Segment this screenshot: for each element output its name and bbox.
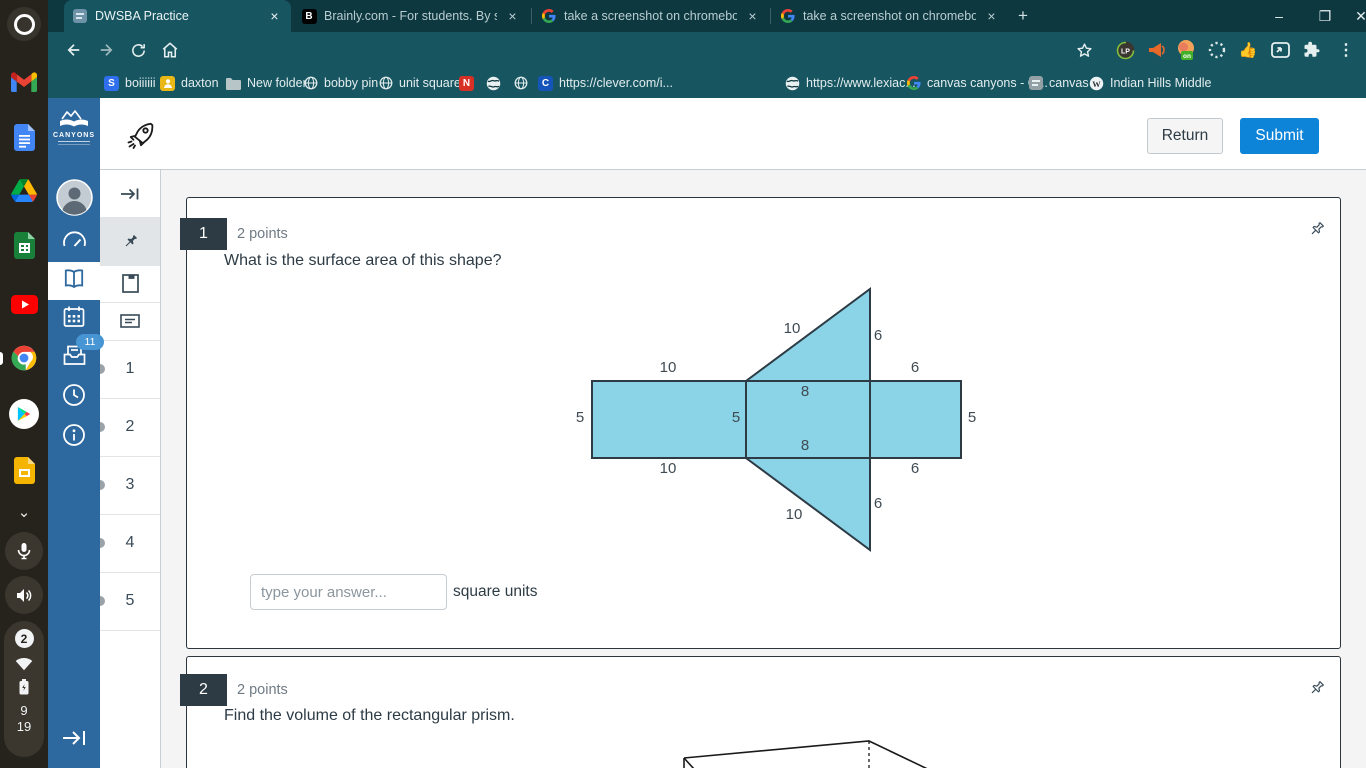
net-top-triangle bbox=[746, 289, 870, 381]
bookmark-canvas[interactable]: canvas bbox=[1029, 68, 1089, 98]
nav-inbox-icon[interactable]: 11 bbox=[48, 342, 100, 369]
extensions-puzzle-icon[interactable] bbox=[1300, 38, 1324, 62]
nav-help-icon[interactable] bbox=[48, 422, 100, 448]
restore-window-icon[interactable]: ❐ bbox=[1312, 4, 1338, 28]
globe-icon bbox=[486, 76, 501, 91]
google-favicon-icon bbox=[780, 8, 796, 24]
chrome-active-indicator bbox=[0, 352, 3, 365]
net-dimension-label: 10 bbox=[784, 320, 801, 337]
new-quizzes-rocket-icon bbox=[124, 118, 158, 152]
question-nav-item-1[interactable]: 1 bbox=[100, 340, 160, 398]
net-dimension-label: 8 bbox=[801, 383, 809, 400]
dotted-circle-extension-icon[interactable] bbox=[1205, 38, 1229, 62]
bookmark-lexia[interactable]: https://www.lexiac... bbox=[785, 68, 916, 98]
globe-icon bbox=[785, 76, 800, 91]
tab-strip: DWSBA Practice × B Brainly.com - For stu… bbox=[48, 0, 1366, 32]
bookmark-star-icon[interactable] bbox=[1072, 38, 1096, 62]
bookmark-bobby-pin[interactable]: bobby pin bbox=[304, 68, 378, 98]
bookmark-label: canvas bbox=[1049, 76, 1089, 90]
wifi-icon bbox=[15, 657, 33, 671]
svg-text:LP: LP bbox=[1121, 48, 1130, 55]
net-rectangle-strip bbox=[592, 381, 961, 458]
tab-separator bbox=[770, 8, 771, 24]
net-dimension-label: 10 bbox=[786, 506, 803, 523]
net-dimension-label: 5 bbox=[968, 409, 976, 426]
question-nav-number: 3 bbox=[126, 476, 135, 494]
canvas-favicon bbox=[1029, 76, 1043, 90]
megaphone-extension-icon[interactable] bbox=[1144, 38, 1168, 62]
google-favicon-icon bbox=[541, 8, 557, 24]
tab-dwsba-practice[interactable]: DWSBA Practice × bbox=[64, 0, 291, 32]
bookmark-label: Indian Hills Middle bbox=[1110, 76, 1211, 90]
bookmark-label: https://clever.com/i... bbox=[559, 76, 673, 90]
tab-separator bbox=[531, 8, 532, 24]
battery-charging-icon bbox=[19, 679, 29, 695]
net-dimension-label: 10 bbox=[660, 460, 677, 477]
bookmark-globe-site-1[interactable] bbox=[486, 68, 501, 98]
tab-close-icon[interactable]: × bbox=[266, 8, 283, 25]
svg-text:on: on bbox=[1183, 53, 1191, 60]
brainly-favicon-icon: B bbox=[301, 8, 317, 24]
svg-text:W: W bbox=[1092, 78, 1101, 88]
google-drive-app-icon[interactable] bbox=[4, 170, 44, 210]
inbox-unread-badge: 11 bbox=[76, 334, 104, 350]
net-dimension-label: 6 bbox=[874, 327, 882, 344]
tab-close-icon[interactable]: × bbox=[744, 8, 761, 25]
question-nav-number: 5 bbox=[126, 592, 135, 610]
launcher-button[interactable] bbox=[4, 4, 44, 44]
google-sheets-app-icon[interactable] bbox=[4, 225, 44, 265]
tab-close-icon[interactable]: × bbox=[983, 8, 1000, 25]
tab-screenshot-1[interactable]: take a screenshot on chromeboo × bbox=[533, 0, 769, 32]
bookmark-clever[interactable]: C https://clever.com/i... bbox=[538, 68, 673, 98]
tab-title: Brainly.com - For students. By st bbox=[324, 9, 497, 23]
rectangular-prism-diagram bbox=[656, 736, 946, 768]
browser-menu-icon[interactable]: ⋮ bbox=[1334, 38, 1358, 62]
canvas-global-nav: CANYONS 11 bbox=[48, 98, 100, 768]
bookmark-n-site[interactable]: N bbox=[459, 68, 474, 98]
tab-title: DWSBA Practice bbox=[95, 9, 259, 23]
canyons-logo[interactable]: CANYONS bbox=[48, 106, 100, 145]
prism-net-diagram: 10 10 6 6 5 5 8 8 5 10 6 10 6 bbox=[561, 279, 991, 561]
pin-question-icon[interactable] bbox=[1307, 679, 1326, 698]
gmail-app-icon[interactable] bbox=[4, 62, 44, 102]
question-nav-item-3[interactable]: 3 bbox=[100, 456, 160, 514]
net-dimension-label: 8 bbox=[801, 437, 809, 454]
shelf-overflow-chevron-icon[interactable]: ⌄ bbox=[4, 492, 44, 532]
bookmark-label: boiiiiii bbox=[125, 76, 156, 90]
tab-screenshot-2[interactable]: take a screenshot on chromeboo × bbox=[772, 0, 1008, 32]
question-card-1: 1 2 points What is the surface area of t… bbox=[186, 197, 1341, 649]
question-nav-number: 2 bbox=[126, 418, 135, 436]
dictation-mic-button[interactable] bbox=[4, 531, 44, 571]
question-points: 2 points bbox=[237, 226, 288, 242]
assignment-header: Return Submit bbox=[100, 98, 1366, 170]
question-number-badge: 1 bbox=[180, 218, 227, 250]
bookmarks-bar: S boiiiiii daxton New folder bobby pin u… bbox=[48, 68, 1366, 98]
browser-toolbar: canyons.instructure.com/courses/1398238/… bbox=[48, 32, 1366, 68]
return-button[interactable]: Return bbox=[1147, 118, 1223, 154]
youtube-app-icon[interactable] bbox=[4, 284, 44, 324]
thumbs-up-extension-icon[interactable]: 👍 bbox=[1236, 38, 1260, 62]
minimize-window-icon[interactable]: – bbox=[1266, 4, 1292, 28]
status-tray[interactable]: 2 9 19 bbox=[4, 621, 44, 757]
question-points: 2 points bbox=[237, 682, 288, 698]
dwsba-favicon-icon bbox=[72, 8, 88, 24]
new-tab-button[interactable]: + bbox=[1010, 4, 1036, 28]
google-play-app-icon[interactable] bbox=[4, 394, 44, 434]
home-button[interactable] bbox=[158, 38, 182, 62]
net-dimension-label: 6 bbox=[911, 460, 919, 477]
net-dimension-label: 6 bbox=[911, 359, 919, 376]
collapse-nav-button[interactable] bbox=[100, 170, 160, 217]
bookmark-unit-square[interactable]: unit square bbox=[379, 68, 461, 98]
google-favicon-icon bbox=[907, 76, 921, 90]
net-bottom-triangle bbox=[746, 458, 870, 550]
single-question-view-button[interactable] bbox=[100, 265, 160, 302]
back-button[interactable] bbox=[62, 38, 86, 62]
chrome-app-icon[interactable] bbox=[4, 338, 44, 378]
close-window-icon[interactable]: ✕ bbox=[1348, 4, 1366, 28]
bookmark-daxton[interactable]: daxton bbox=[160, 68, 219, 98]
person-favicon bbox=[160, 76, 175, 91]
google-docs-app-icon[interactable] bbox=[4, 117, 44, 157]
comments-view-button[interactable] bbox=[100, 302, 160, 340]
question-prompt: What is the surface area of this shape? bbox=[224, 252, 501, 270]
notification-counter: 2 bbox=[15, 629, 34, 648]
clever-favicon: C bbox=[538, 76, 553, 91]
nav-dashboard-icon[interactable] bbox=[48, 226, 100, 250]
account-avatar[interactable] bbox=[48, 179, 100, 216]
reload-button[interactable] bbox=[126, 38, 150, 62]
question-nav-number: 1 bbox=[126, 360, 135, 378]
tab-close-icon[interactable]: × bbox=[504, 8, 521, 25]
chromeos-shelf: ⌄ 2 9 19 bbox=[0, 0, 48, 768]
bookmark-favicon: S bbox=[104, 76, 119, 91]
answer-unit-label: square units bbox=[453, 583, 537, 601]
select-to-speak-button[interactable] bbox=[4, 575, 44, 615]
tab-brainly[interactable]: B Brainly.com - For students. By st × bbox=[293, 0, 529, 32]
question-number-badge: 2 bbox=[180, 674, 227, 706]
nav-calendar-icon[interactable] bbox=[48, 304, 100, 330]
tab-title: take a screenshot on chromeboo bbox=[564, 9, 737, 23]
question-nav-item-5[interactable]: 5 bbox=[100, 572, 160, 630]
bookmark-new-folder[interactable]: New folder bbox=[225, 68, 307, 98]
net-dimension-label: 10 bbox=[660, 359, 677, 376]
net-dimension-label: 5 bbox=[732, 409, 740, 426]
wordpress-icon: W bbox=[1089, 76, 1104, 91]
tab-title: take a screenshot on chromeboo bbox=[803, 9, 976, 23]
folder-icon bbox=[225, 77, 241, 90]
screencastify-on-extension-icon[interactable]: on bbox=[1174, 38, 1198, 62]
net-dimension-label: 5 bbox=[576, 409, 584, 426]
net-dimension-label: 6 bbox=[874, 495, 882, 512]
bookmark-canvas-canyons[interactable]: canvas canyons - G... bbox=[907, 68, 1048, 98]
bookmark-label: daxton bbox=[181, 76, 219, 90]
screen-share-extension-icon[interactable] bbox=[1268, 38, 1292, 62]
globe-icon bbox=[379, 76, 393, 90]
bookmark-label: bobby pin bbox=[324, 76, 378, 90]
canyons-logo-text: CANYONS bbox=[53, 132, 95, 139]
bookmark-indian-hills[interactable]: W Indian Hills Middle bbox=[1089, 68, 1211, 98]
question-prompt: Find the volume of the rectangular prism… bbox=[224, 707, 515, 725]
pinned-questions-button[interactable] bbox=[100, 218, 160, 265]
nav-expand-arrow-icon[interactable] bbox=[48, 728, 100, 748]
bookmark-globe-site-2[interactable] bbox=[514, 68, 528, 98]
screen: DWSBA Practice × B Brainly.com - For stu… bbox=[0, 0, 1366, 768]
submit-button[interactable]: Submit bbox=[1240, 118, 1319, 154]
answer-input[interactable] bbox=[250, 574, 447, 610]
nav-history-icon[interactable] bbox=[48, 382, 100, 408]
lastpass-extension-icon[interactable]: LP bbox=[1113, 38, 1137, 62]
question-nav-item-4[interactable]: 4 bbox=[100, 514, 160, 572]
forward-button[interactable] bbox=[94, 38, 118, 62]
clock: 9 19 bbox=[17, 703, 31, 735]
question-nav-item-2[interactable]: 2 bbox=[100, 398, 160, 456]
pin-question-icon[interactable] bbox=[1307, 220, 1326, 239]
nav-courses-icon[interactable] bbox=[48, 266, 100, 292]
n-favicon: N bbox=[459, 76, 474, 91]
bookmark-label: New folder bbox=[247, 76, 307, 90]
question-nav-number: 4 bbox=[126, 534, 135, 552]
question-card-2: 2 2 points Find the volume of the rectan… bbox=[186, 656, 1341, 768]
globe-icon bbox=[514, 76, 528, 90]
bookmark-boiiiiii[interactable]: S boiiiiii bbox=[104, 68, 156, 98]
quiz-question-nav: 1 2 3 4 5 bbox=[100, 170, 161, 768]
google-slides-app-icon[interactable] bbox=[4, 450, 44, 490]
bookmark-label: unit square bbox=[399, 76, 461, 90]
globe-icon bbox=[304, 76, 318, 90]
bookmark-label: https://www.lexiac... bbox=[806, 76, 916, 90]
